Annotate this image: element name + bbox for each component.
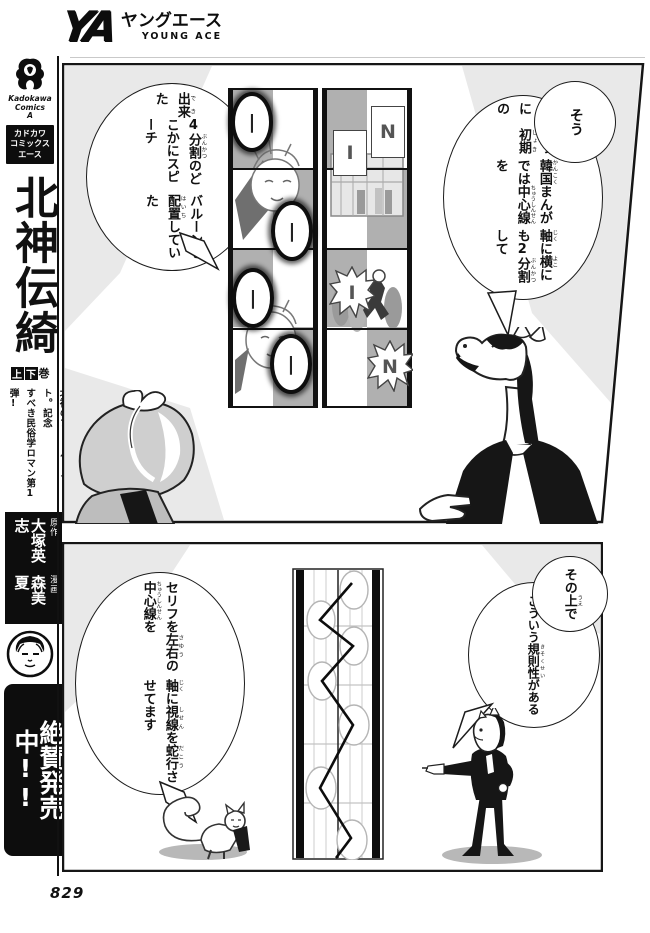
balloon-oval-4: | bbox=[274, 338, 308, 390]
panel-bottom: セリフを左右さゆうの中心線ちゅうしんせんを 軸じくに視線しせんを蛇行だこうさせて… bbox=[62, 542, 603, 872]
manga-page: YA ヤングエース YOUNG ACE Kadokawa Comics A カド… bbox=[0, 0, 650, 933]
magazine-title-en: YOUNG ACE bbox=[121, 31, 222, 42]
balloon-oval-2: | bbox=[275, 205, 309, 257]
speech-bubble-p2-left: セリフを左右さゆうの中心線ちゅうしんせんを 軸じくに視線しせんを蛇行だこうさせて… bbox=[75, 572, 245, 795]
balloon-oval-3: | bbox=[236, 272, 270, 324]
speech-bubble-p1-right-intro: そう bbox=[534, 81, 616, 163]
balloon-burst-i: I bbox=[329, 266, 375, 318]
young-ace-monogram: YA bbox=[59, 6, 116, 48]
panel-top: 出来できた 4分割ぶんかつのどこかにスピーチ バルーンを配置はいちしていた この… bbox=[62, 63, 645, 524]
author-portrait-icon bbox=[6, 630, 54, 678]
diagram-strip-squares: I N I N bbox=[322, 88, 412, 408]
magazine-logo: YA ヤングエース YOUNG ACE bbox=[62, 6, 222, 48]
speech-text: そう bbox=[535, 82, 615, 162]
horse-headed-lecturer bbox=[418, 327, 600, 524]
pointing-horse-man bbox=[420, 708, 565, 866]
balloon-burst-n: N bbox=[367, 340, 413, 392]
magazine-title-kana: ヤングエース bbox=[121, 12, 222, 31]
balloon-square-i: I bbox=[333, 130, 367, 176]
panel-gutter bbox=[322, 328, 412, 330]
speech-text: その上うえで bbox=[533, 557, 607, 631]
volume-upper: 上 bbox=[11, 367, 24, 380]
bundled-head-listener bbox=[62, 390, 217, 524]
sidebar-divider bbox=[57, 56, 59, 876]
volume-kan: 巻 bbox=[39, 365, 50, 381]
volume-badge: 上 下 巻 bbox=[4, 365, 56, 381]
credit-artist: 漫画 森美夏 bbox=[13, 575, 57, 618]
svg-text:N: N bbox=[382, 356, 398, 378]
volume-lower: 下 bbox=[25, 367, 38, 380]
sidebar-book-ad: Kadokawa Comics A カドカワ コミックス エース 北神伝綺 上 … bbox=[4, 56, 56, 856]
header-rule bbox=[70, 57, 645, 58]
panel-gutter bbox=[228, 168, 318, 170]
credits-box: 原作 大塚英志 漫画 森美夏 bbox=[5, 512, 62, 624]
kadokawa-phoenix-logo-icon bbox=[13, 56, 47, 94]
page-number: 829 bbox=[50, 884, 84, 902]
panel-gutter bbox=[322, 248, 412, 250]
diagram-strip-ovals: | | | | bbox=[228, 88, 318, 408]
series-title: 北神伝綺 bbox=[6, 170, 54, 360]
speech-text: セリフを左右さゆうの中心線ちゅうしんせんを 軸じくに視線しせんを蛇行だこうさせて… bbox=[76, 573, 244, 794]
balloon-oval-1: | bbox=[235, 96, 269, 148]
imprint-badge: カドカワ コミックス エース bbox=[6, 125, 54, 164]
walking-cat bbox=[145, 788, 260, 864]
eye-flow-diagram bbox=[292, 568, 384, 860]
speech-bubble-p2-right-intro: その上うえで bbox=[532, 556, 608, 632]
balloon-square-n: N bbox=[371, 106, 405, 158]
publisher-name: Kadokawa Comics A bbox=[4, 95, 56, 121]
bubble-tail bbox=[174, 231, 220, 271]
credit-original: 原作 大塚英志 bbox=[13, 518, 57, 575]
svg-text:I: I bbox=[348, 282, 355, 304]
panel-gutter bbox=[228, 328, 318, 330]
